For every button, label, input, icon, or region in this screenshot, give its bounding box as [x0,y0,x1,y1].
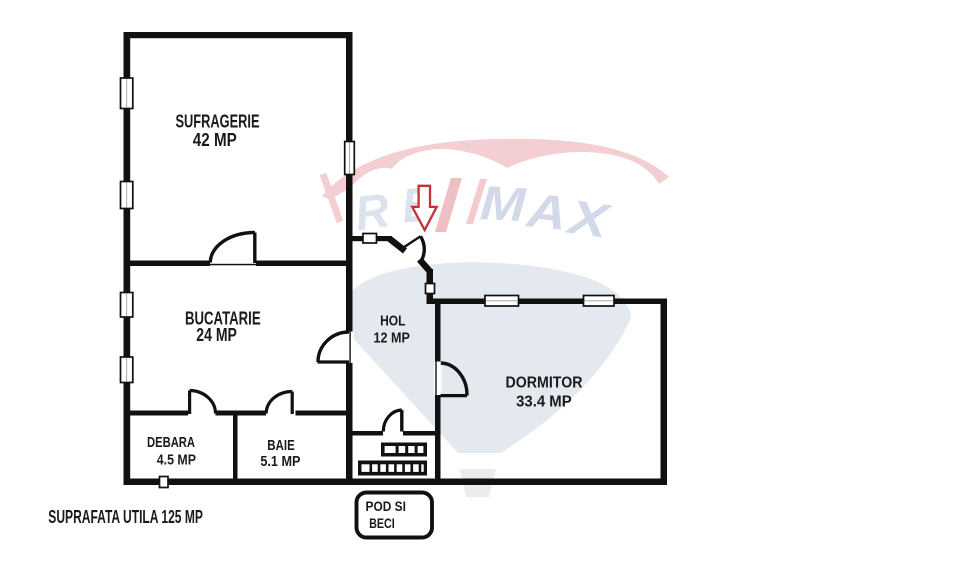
svg-text:24 MP: 24 MP [196,325,237,345]
svg-text:HOL: HOL [380,313,405,330]
svg-text:4.5 MP: 4.5 MP [157,452,196,469]
svg-text:12 MP: 12 MP [374,330,410,347]
svg-text:A: A [524,184,569,241]
svg-text:DEBARA: DEBARA [147,434,195,451]
svg-text:BAIE: BAIE [267,437,295,454]
svg-text:SUFRAGERIE: SUFRAGERIE [176,112,260,132]
svg-text:BECI: BECI [369,516,395,531]
svg-text:POD SI: POD SI [366,499,406,514]
svg-text:5.1 MP: 5.1 MP [260,453,300,470]
svg-text:42 MP: 42 MP [193,130,237,150]
svg-text:M: M [479,177,528,232]
svg-text:DORMITOR: DORMITOR [506,375,583,392]
svg-text:33.4 MP: 33.4 MP [516,393,572,410]
svg-text:SUPRAFATA UTILA 125 MP: SUPRAFATA UTILA 125 MP [48,507,203,527]
